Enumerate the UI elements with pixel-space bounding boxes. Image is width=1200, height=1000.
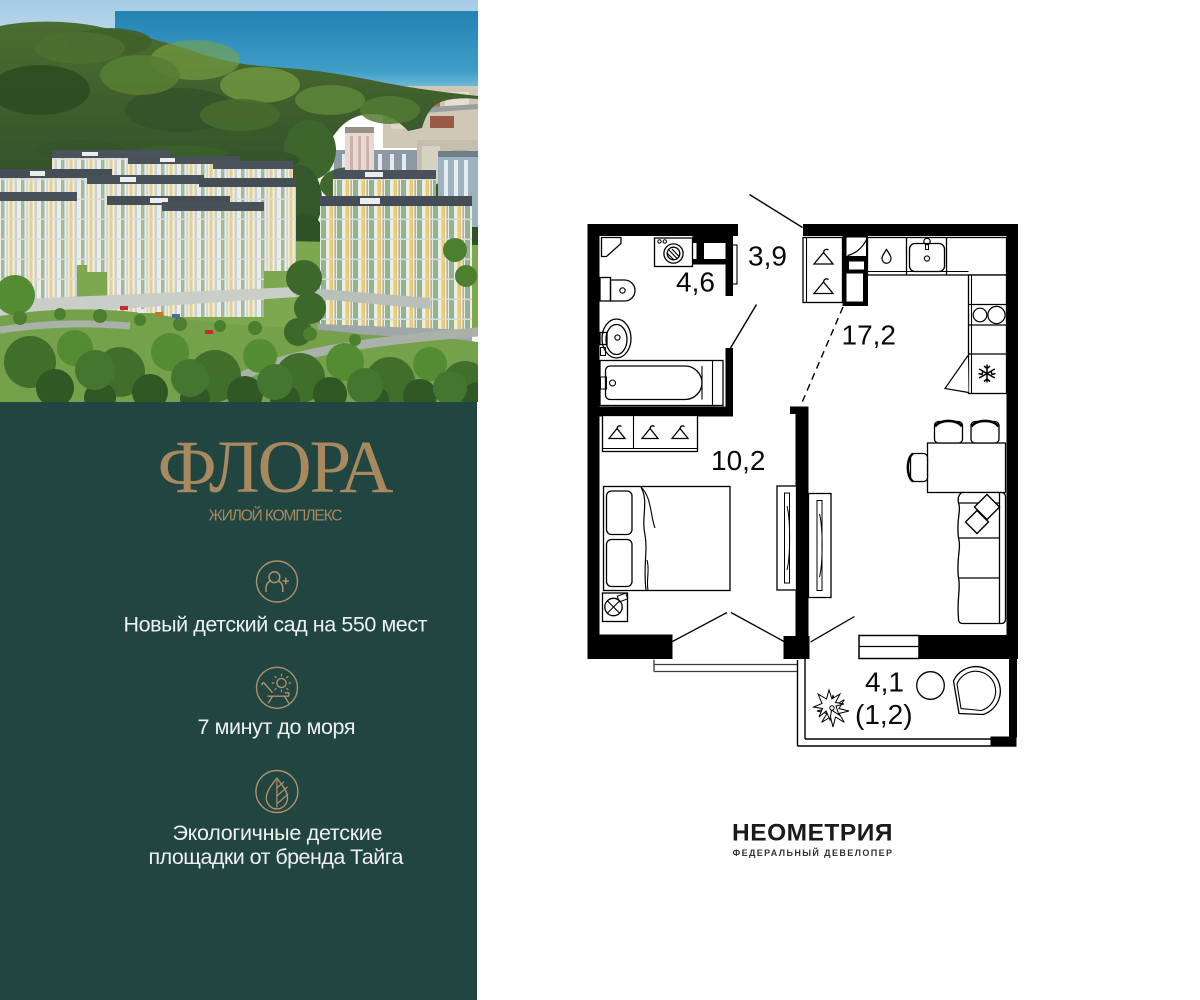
svg-text:3,9: 3,9 bbox=[748, 241, 787, 272]
svg-text:Новый детский сад на 550 мест: Новый детский сад на 550 мест bbox=[124, 613, 428, 637]
svg-text:(1,2): (1,2) bbox=[855, 699, 913, 730]
svg-text:4,1: 4,1 bbox=[865, 667, 904, 698]
svg-text:НЕОМЕТРИЯ: НЕОМЕТРИЯ bbox=[732, 820, 893, 847]
svg-text:площадки от бренда Тайга: площадки от бренда Тайга bbox=[149, 845, 404, 869]
svg-text:4,6: 4,6 bbox=[676, 267, 715, 298]
svg-text:ЖИЛОЙ КОМПЛЕКС: ЖИЛОЙ КОМПЛЕКС bbox=[209, 507, 345, 525]
svg-text:ФЕДЕРАЛЬНЫЙ ДЕВЕЛОПЕР: ФЕДЕРАЛЬНЫЙ ДЕВЕЛОПЕР bbox=[733, 847, 893, 858]
svg-text:10,2: 10,2 bbox=[711, 445, 766, 476]
svg-text:Экологичные детские: Экологичные детские bbox=[173, 821, 383, 845]
svg-text:7 минут до моря: 7 минут до моря bbox=[198, 715, 356, 739]
svg-text:ФЛОРА: ФЛОРА bbox=[158, 426, 394, 509]
svg-text:17,2: 17,2 bbox=[842, 320, 897, 351]
